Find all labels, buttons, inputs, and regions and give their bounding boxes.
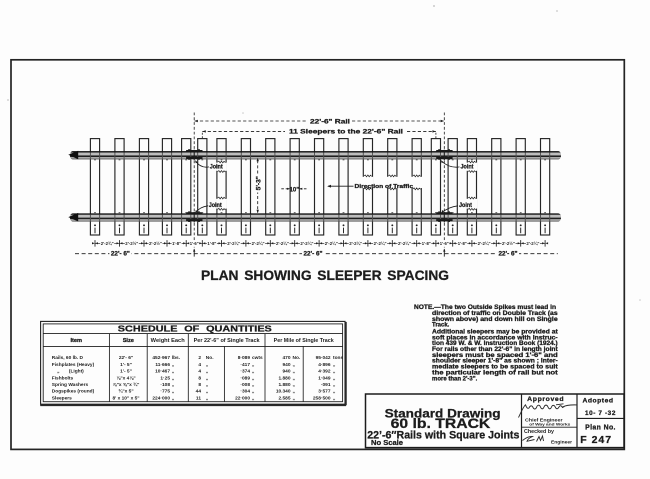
svg-text:tons: tons [333, 355, 343, 361]
svg-text:Engineer: Engineer [551, 439, 572, 444]
svg-text:10·467: 10·467 [155, 369, 170, 375]
svg-text:4·896: 4·896 [318, 362, 331, 368]
svg-text:22·000: 22·000 [235, 395, 250, 401]
svg-text:F 247: F 247 [580, 434, 612, 446]
svg-text:·008: ·008 [240, 382, 250, 388]
svg-text:1·049: 1·049 [318, 375, 331, 381]
svg-text:4: 4 [198, 362, 201, 368]
svg-text:11 Sleepers to the 22'-6" Rail: 11 Sleepers to the 22'-6" Rail [289, 128, 403, 135]
svg-text:·304: ·304 [240, 389, 250, 395]
svg-text:2'-2¼": 2'-2¼" [252, 240, 265, 247]
svg-text:2: 2 [198, 355, 201, 361]
svg-text:2'-2¼": 2'-2¼" [526, 240, 539, 247]
svg-text:1·25: 1·25 [160, 375, 170, 381]
svg-text:10.340: 10.340 [276, 389, 291, 395]
svg-text:Joint: Joint [210, 164, 223, 170]
svg-text:4·392: 4·392 [318, 369, 331, 375]
svg-text:1'-8": 1'-8" [422, 241, 431, 247]
svg-text:10- 7 -32: 10- 7 -32 [585, 410, 616, 417]
svg-text:8: 8 [198, 375, 201, 381]
svg-text:⅞"x 4⅞": ⅞"x 4⅞" [116, 375, 135, 381]
svg-text:„ (Light): „ (Light) [52, 369, 84, 375]
svg-text:470: 470 [282, 355, 290, 361]
svg-text:5'-3": 5'-3" [256, 176, 263, 190]
svg-text:1'-6": 1'-6" [190, 241, 199, 247]
svg-text:940: 940 [282, 362, 290, 368]
svg-text:Dogspikes (round): Dogspikes (round) [52, 389, 95, 395]
svg-text:of Way and Works: of Way and Works [529, 423, 570, 427]
svg-text:Checked by: Checked by [524, 429, 554, 435]
svg-text:Track.: Track. [432, 323, 450, 329]
svg-text:·108: ·108 [160, 382, 170, 388]
svg-text:Fishplates (Heavy): Fishplates (Heavy) [52, 362, 95, 368]
svg-text:Weight Each: Weight Each [151, 338, 185, 344]
svg-text:1.880: 1.880 [278, 382, 290, 388]
svg-text:PLAN SHOWING SLEEPER SPACING: PLAN SHOWING SLEEPER SPACING [201, 268, 449, 284]
svg-text:22'-6" Rail: 22'-6" Rail [310, 118, 350, 125]
svg-text:224·000: 224·000 [152, 395, 170, 401]
svg-text:22'- 6": 22'- 6" [499, 251, 518, 257]
svg-text:1'- 5": 1'- 5" [120, 369, 132, 375]
svg-text:2'-2¼": 2'-2¼" [325, 240, 338, 247]
svg-text:1'-8": 1'-8" [207, 241, 216, 247]
svg-text:Item: Item [70, 338, 82, 344]
svg-text:·091: ·091 [321, 382, 331, 388]
svg-text:22'- 6": 22'- 6" [119, 355, 133, 361]
svg-text:2.585: 2.585 [278, 395, 290, 401]
svg-text:2'-2¼": 2'-2¼" [349, 240, 362, 247]
svg-text:Joint: Joint [459, 203, 472, 209]
svg-text:Joint: Joint [209, 203, 222, 209]
svg-text:Rails, 60 lb. D: Rails, 60 lb. D [52, 355, 84, 361]
svg-text:cwts: cwts [252, 355, 263, 361]
svg-text:940: 940 [282, 369, 290, 375]
svg-text:1'-6": 1'-6" [440, 241, 449, 247]
svg-text:4: 4 [198, 369, 201, 375]
svg-text:3·577: 3·577 [318, 389, 331, 395]
svg-text:8·089: 8·089 [238, 355, 251, 361]
svg-text:452·967: 452·967 [152, 355, 170, 361]
svg-text:2'-2¼": 2'-2¼" [398, 240, 411, 247]
svg-text:·089: ·089 [240, 375, 250, 381]
svg-text:22'- 6": 22'- 6" [111, 251, 130, 257]
svg-text:shown above) and down hill on: shown above) and down hill on Single [432, 317, 558, 323]
svg-text:·417: ·417 [240, 362, 250, 368]
svg-text:1.880: 1.880 [278, 375, 290, 381]
svg-text:95·042: 95·042 [316, 355, 331, 361]
svg-text:SCHEDULE OF QUANTITIES: SCHEDULE OF QUANTITIES [118, 323, 272, 333]
svg-text:Direction of Traffic: Direction of Traffic [355, 184, 414, 190]
svg-text:2'-2¼": 2'-2¼" [478, 240, 491, 247]
svg-text:No.: No. [293, 355, 301, 361]
svg-text:2'-2¼": 2'-2¼" [374, 240, 387, 247]
svg-text:⅞"x ⅝"x ¾": ⅞"x ⅝"x ¾" [113, 381, 140, 388]
svg-text:lbs.: lbs. [172, 355, 180, 361]
svg-text:Joint: Joint [461, 164, 474, 170]
svg-text:1'-8": 1'-8" [172, 241, 181, 247]
svg-text:2'-2¾": 2'-2¾" [101, 240, 114, 247]
svg-text:more than 2'-3".: more than 2'-3". [432, 376, 478, 382]
svg-text:·374: ·374 [240, 369, 250, 375]
svg-text:Approved: Approved [527, 396, 564, 403]
svg-text:Per Mile of Single Track: Per Mile of Single Track [274, 338, 334, 344]
svg-text:10": 10" [290, 187, 300, 193]
svg-text:Spring Washers: Spring Washers [52, 382, 89, 388]
svg-text:258·500: 258·500 [313, 395, 331, 401]
svg-text:1'-8": 1'-8" [458, 241, 467, 247]
svg-text:2'-2½": 2'-2½" [502, 240, 515, 247]
svg-text:Per 22'-6" of Single Track: Per 22'-6" of Single Track [194, 338, 260, 344]
svg-text:11·666: 11·666 [155, 362, 170, 368]
svg-text:2'-2¼": 2'-2¼" [227, 240, 240, 247]
svg-text:Fishbolts: Fishbolts [52, 375, 74, 381]
svg-text:11: 11 [196, 395, 201, 401]
svg-text:2'-2¼": 2'-2¼" [276, 240, 289, 247]
svg-text:2'-2½": 2'-2½" [125, 240, 138, 247]
svg-text:2'-2½": 2'-2½" [149, 240, 162, 247]
svg-text:No.: No. [206, 355, 214, 361]
svg-text:Size: Size [123, 338, 134, 344]
svg-text:Sleepers: Sleepers [52, 395, 72, 401]
svg-text:No Scale: No Scale [371, 440, 403, 447]
svg-text:2'-2¼": 2'-2¼" [300, 240, 313, 247]
svg-text:·775: ·775 [160, 389, 170, 395]
svg-text:22'- 6": 22'- 6" [304, 251, 323, 257]
svg-text:Plan No.: Plan No. [585, 424, 616, 431]
svg-text:8: 8 [198, 382, 201, 388]
svg-text:¾"x 5": ¾"x 5" [118, 388, 133, 395]
svg-text:Adopted: Adopted [583, 398, 614, 405]
svg-text:8' x 10" x 5": 8' x 10" x 5" [112, 395, 139, 401]
svg-text:1'- 5": 1'- 5" [120, 362, 132, 368]
svg-text:44: 44 [196, 389, 202, 395]
